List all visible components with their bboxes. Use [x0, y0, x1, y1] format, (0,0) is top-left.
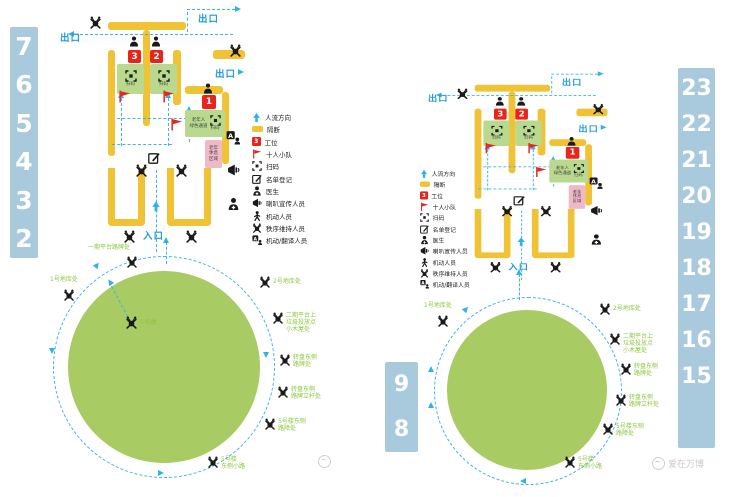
legend-item: 十人小队 [420, 201, 510, 212]
flow-arrow-icon [516, 236, 526, 247]
watermark-logo-icon [318, 455, 331, 468]
exit-label: 出口 [562, 75, 582, 87]
legend-item: 秩序维持人员 [252, 222, 352, 234]
workstation-3: 3 [494, 109, 507, 120]
legend-item: 喇叭宣传人员 [420, 245, 510, 256]
flow-arrow-icon [238, 69, 244, 75]
doctor-icon [590, 234, 603, 246]
rest-area-label: 老年 休息 区域 [573, 190, 582, 204]
translator-icon [589, 177, 603, 190]
workstation-1: 1 [566, 147, 580, 159]
entrance-label: 入口 [143, 228, 164, 242]
partition-bar [108, 50, 115, 156]
flow-arrow-icon [252, 112, 261, 123]
order-keeper-icon [63, 289, 75, 301]
scan-icon [420, 213, 429, 222]
elderly-channel-zone: 老年人 绿色通道 扫码 [549, 160, 588, 183]
legend-item: 十人小队 [252, 148, 352, 160]
bar-number: 21 [681, 148, 712, 173]
flow-path [75, 34, 233, 35]
bar-number: 8 [394, 417, 409, 442]
order-keeper-icon [126, 256, 138, 268]
partition-icon [420, 182, 430, 187]
order-keeper-icon [185, 230, 198, 243]
register-icon [420, 224, 429, 233]
site-label-garage1: 1号地库处 [50, 276, 78, 283]
legend-label: 医生 [266, 186, 279, 196]
flow-arrow-icon [158, 470, 164, 476]
scan-icon [252, 161, 262, 171]
site-label-roundabout-sign: 转盘东侧 路牌处 [279, 354, 317, 368]
bar-number: 3 [15, 186, 32, 215]
flow-arrow-icon [420, 169, 428, 179]
elderly-channel-label: 老年人 绿色通道 [554, 166, 571, 176]
flow-path [112, 144, 172, 145]
legend-item: 3工位 [420, 190, 510, 201]
exit-label: 出口 [578, 122, 598, 134]
megaphone-icon [227, 163, 240, 177]
partition-icon [252, 126, 263, 132]
legend-item: 名单登记 [420, 223, 510, 234]
legend-label: 隔断 [434, 180, 446, 189]
flow-arrow-icon [598, 71, 604, 76]
legend-item: 机动/翻译人员 [252, 234, 352, 246]
site-label-bldg5-east-barrier: 5号楼东侧 路障处 [264, 418, 306, 432]
scan-icon [523, 126, 535, 136]
station-icon: 3 [252, 137, 261, 146]
watermark-logo-icon [652, 457, 665, 470]
site-label-building5: 5号楼 [125, 316, 157, 329]
scan-icon [210, 115, 221, 126]
order-keeper-icon [599, 303, 611, 315]
translator-icon [420, 280, 429, 289]
order-keeper-icon [125, 316, 138, 329]
elderly-rest-area: 老年 休息 区域 [569, 185, 585, 209]
scan-label: 扫码 [211, 126, 220, 132]
flow-arrow-icon [462, 305, 470, 313]
flow-arrow-icon [516, 269, 522, 275]
partition-bar [108, 22, 186, 30]
site-label-garage1: 1号地库处 [424, 302, 452, 309]
order-keeper-icon [259, 276, 271, 288]
bar-number: 18 [681, 256, 712, 281]
megaphone-icon [252, 198, 262, 208]
exit-label: 出口 [198, 11, 219, 25]
staff-person-icon [150, 36, 162, 47]
elderly-rest-area: 老年 休息 区域 [205, 140, 222, 168]
staff-person-icon [128, 36, 140, 47]
partition-bar [509, 92, 516, 174]
legend-label: 工位 [265, 137, 278, 147]
order-keeper-icon [272, 312, 284, 324]
site-label-garage2: 2号地库处 [599, 303, 641, 315]
site-flow-diagram: 7 6 5 4 3 2 9 8 23 22 21 20 19 18 17 16 … [0, 0, 735, 497]
mobile-person-icon [420, 258, 429, 267]
megaphone-icon [590, 205, 603, 217]
flow-path [533, 149, 534, 190]
scan-label: 扫码 [492, 136, 501, 141]
vaccination-plan-left: 出口 出口 出口 入口 3 2 扫码 扫码 1 老年人 绿色通道 扫码 [95, 14, 255, 264]
order-keeper-icon [437, 315, 449, 327]
bar-number: 2 [15, 224, 32, 253]
order-keeper-icon [277, 386, 289, 398]
flow-path [121, 98, 122, 146]
legend-label: 十人小队 [433, 202, 456, 211]
queue-room [532, 209, 575, 258]
bar-number: 9 [394, 372, 409, 397]
order-keeper-icon [229, 44, 242, 57]
order-keeper-icon [135, 164, 148, 177]
order-keeper-icon [540, 206, 553, 217]
exit-label: 出口 [215, 66, 236, 80]
site-label-phase2-platform: 二期平台上 垃圾投放点 小木屋处 [272, 312, 316, 334]
legend-label: 人流方向 [265, 112, 291, 122]
legend-label: 机动人员 [266, 211, 292, 221]
legend-label: 喇叭宣传人员 [266, 198, 305, 208]
legend-item: 名单登记 [252, 172, 352, 184]
flow-arrow-icon [263, 352, 269, 358]
register-icon [513, 195, 525, 205]
legend-label: 秩序维持人员 [433, 269, 468, 278]
legend-left: 人流方向 隔断 3工位 十人小队 扫码 名单登记 医生 喇叭宣传人员 机动人员 … [252, 111, 352, 246]
squad-flag-icon [484, 143, 497, 154]
number-bar-right: 23 22 21 20 19 18 17 16 15 [678, 68, 715, 448]
squad-flag-icon [527, 143, 540, 154]
legend-item: 人流方向 [420, 168, 510, 179]
scan-icon [573, 164, 584, 173]
flow-arrow-icon [601, 125, 607, 130]
workstation-1: 1 [202, 95, 216, 109]
partition-bar [475, 85, 551, 92]
legend-item: 机动人员 [420, 257, 510, 268]
site-label-garage2: 2号地库处 [259, 276, 301, 288]
legend-label: 机动/翻译人员 [433, 280, 470, 289]
flow-arrow-icon [428, 366, 434, 372]
workstation-2: 2 [515, 109, 528, 120]
site-label-roundabout-pole: 转盘东侧 路牌立杆处 [277, 386, 321, 400]
rest-area-label: 老年 休息 区域 [209, 146, 218, 163]
legend-item: 人流方向 [252, 111, 352, 123]
scan-icon [158, 70, 170, 82]
staff-person-icon [494, 97, 506, 106]
legend-item: 医生 [420, 234, 510, 245]
legend-label: 秩序维持人员 [266, 223, 305, 233]
watermark: 爱在万博 [652, 457, 704, 470]
doctor-icon [227, 197, 240, 211]
bar-number: 22 [681, 112, 712, 137]
flow-arrow-icon [520, 478, 526, 484]
bar-number: 19 [681, 220, 712, 245]
legend-item: 机动人员 [252, 209, 352, 221]
workstation-2: 2 [150, 50, 163, 63]
number-bar-left: 7 6 5 4 3 2 [10, 27, 38, 258]
order-keeper-icon [207, 456, 219, 468]
elderly-channel-label: 老年人 绿色通道 [190, 118, 208, 129]
legend-right: 人流方向 隔断 3工位 十人小队 扫码 名单登记 医生 喇叭宣传人员 机动人员 … [420, 168, 510, 290]
bar-number: 4 [15, 147, 32, 176]
bar-number: 23 [681, 76, 712, 101]
staff-person-icon [515, 97, 527, 106]
order-keeper-icon [615, 394, 627, 406]
exit-label: 出口 [60, 30, 81, 44]
order-keeper-icon [456, 88, 469, 99]
flow-path [187, 9, 235, 10]
legend-label: 人流方向 [432, 169, 455, 178]
scan-label: 扫码 [159, 82, 168, 88]
scan-icon [125, 70, 137, 82]
scan-icon [491, 126, 503, 136]
legend-label: 工位 [431, 191, 443, 200]
site-label-roundabout-sign: 转盘东侧 路牌处 [620, 363, 658, 377]
order-keeper-icon [420, 269, 429, 278]
order-keeper-icon [89, 16, 102, 29]
queue-room [167, 168, 211, 226]
legend-label: 十人小队 [266, 149, 292, 159]
legend-item: 扫码 [420, 212, 510, 223]
register-icon [148, 152, 160, 164]
translator-icon [226, 130, 240, 145]
megaphone-icon [420, 246, 429, 255]
order-keeper-icon [279, 354, 291, 366]
number-bar-mid: 9 8 [385, 362, 418, 452]
station-icon: 3 [420, 192, 428, 200]
scan-label: 扫码 [574, 173, 583, 178]
legend-label: 名单登记 [266, 174, 292, 184]
scan-label: 扫码 [524, 136, 533, 141]
flow-arrow-icon [49, 348, 55, 354]
site-label-bldg5-east-path: 5号楼 东侧小路 [564, 456, 602, 470]
order-keeper-icon [549, 262, 562, 273]
flow-arrow-icon [428, 402, 434, 408]
flow-arrow-icon [151, 200, 161, 213]
watermark-partial [318, 455, 331, 468]
flow-path [166, 242, 167, 264]
site-label-phase1-platform: 一期平台路牌处 [88, 244, 130, 251]
squad-flag-icon [170, 118, 183, 131]
legend-label: 喇叭宣传人员 [433, 246, 468, 255]
order-keeper-icon [592, 104, 605, 115]
site-label-bldg5-east-path: 5号楼 东侧小路 [207, 456, 245, 470]
legend-item: 隔断 [420, 179, 510, 190]
flow-ring [53, 256, 275, 478]
legend-label: 扫码 [266, 161, 279, 171]
flag-icon [420, 202, 429, 211]
site-label-bldg5-east-barrier: 5号楼东侧 路障处 [602, 423, 644, 437]
squad-flag-icon [162, 90, 175, 103]
translator-icon [252, 235, 262, 245]
scan-label: 扫码 [126, 82, 135, 88]
flow-path [168, 98, 169, 146]
bar-number: 5 [15, 109, 32, 138]
legend-item: 3工位 [252, 136, 352, 148]
order-keeper-icon [264, 418, 276, 430]
order-keeper-icon [602, 423, 614, 435]
order-keeper-icon [609, 333, 621, 345]
partition-bar [143, 30, 150, 126]
bar-number: 7 [15, 32, 32, 61]
legend-item: 机动/翻译人员 [420, 279, 510, 290]
flow-arrow-icon [163, 237, 169, 243]
flow-arrow-icon [235, 6, 241, 12]
legend-label: 医生 [433, 235, 445, 244]
legend-label: 扫码 [433, 213, 445, 222]
watermark-text: 爱在万博 [668, 457, 704, 470]
order-keeper-icon [175, 164, 188, 177]
legend-item: 喇叭宣传人员 [252, 197, 352, 209]
legend-item: 扫码 [252, 160, 352, 172]
legend-item: 医生 [252, 185, 352, 197]
squad-flag-icon [118, 90, 131, 103]
bar-number: 15 [681, 364, 712, 389]
doctor-icon [252, 186, 262, 196]
flow-path [519, 274, 520, 300]
workstation-3: 3 [128, 50, 141, 63]
elderly-channel-zone: 老年人 绿色通道 扫码 [185, 110, 225, 137]
staff-person-icon [566, 137, 578, 146]
site-label-phase2-platform: 二期平台上 垃圾投放点 小木屋处 [609, 333, 653, 355]
squad-flag-icon [535, 166, 548, 177]
legend-item: 隔断 [252, 123, 352, 135]
flag-icon [252, 149, 262, 159]
staff-person-icon [202, 83, 214, 94]
flow-path [187, 12, 188, 32]
register-icon [252, 174, 262, 184]
legend-label: 隔断 [267, 124, 280, 134]
legend-label: 名单登记 [433, 224, 456, 233]
doctor-icon [420, 235, 429, 244]
flow-path [551, 76, 552, 93]
bar-number: 20 [681, 184, 712, 209]
legend-item: 秩序维持人员 [420, 268, 510, 279]
bar-number: 6 [15, 70, 32, 99]
exit-label: 出口 [428, 92, 448, 104]
order-keeper-icon [123, 230, 136, 243]
legend-label: 机动人员 [433, 258, 456, 267]
bar-number: 16 [681, 328, 712, 353]
bar-number: 17 [681, 292, 712, 317]
order-keeper-icon [252, 223, 262, 233]
site-label-roundabout-pole: 转盘东侧 路牌立杆处 [615, 394, 659, 408]
legend-label: 机动/翻译人员 [266, 235, 307, 245]
order-keeper-icon [564, 456, 576, 468]
order-keeper-icon [620, 363, 632, 375]
mobile-person-icon [252, 211, 262, 221]
